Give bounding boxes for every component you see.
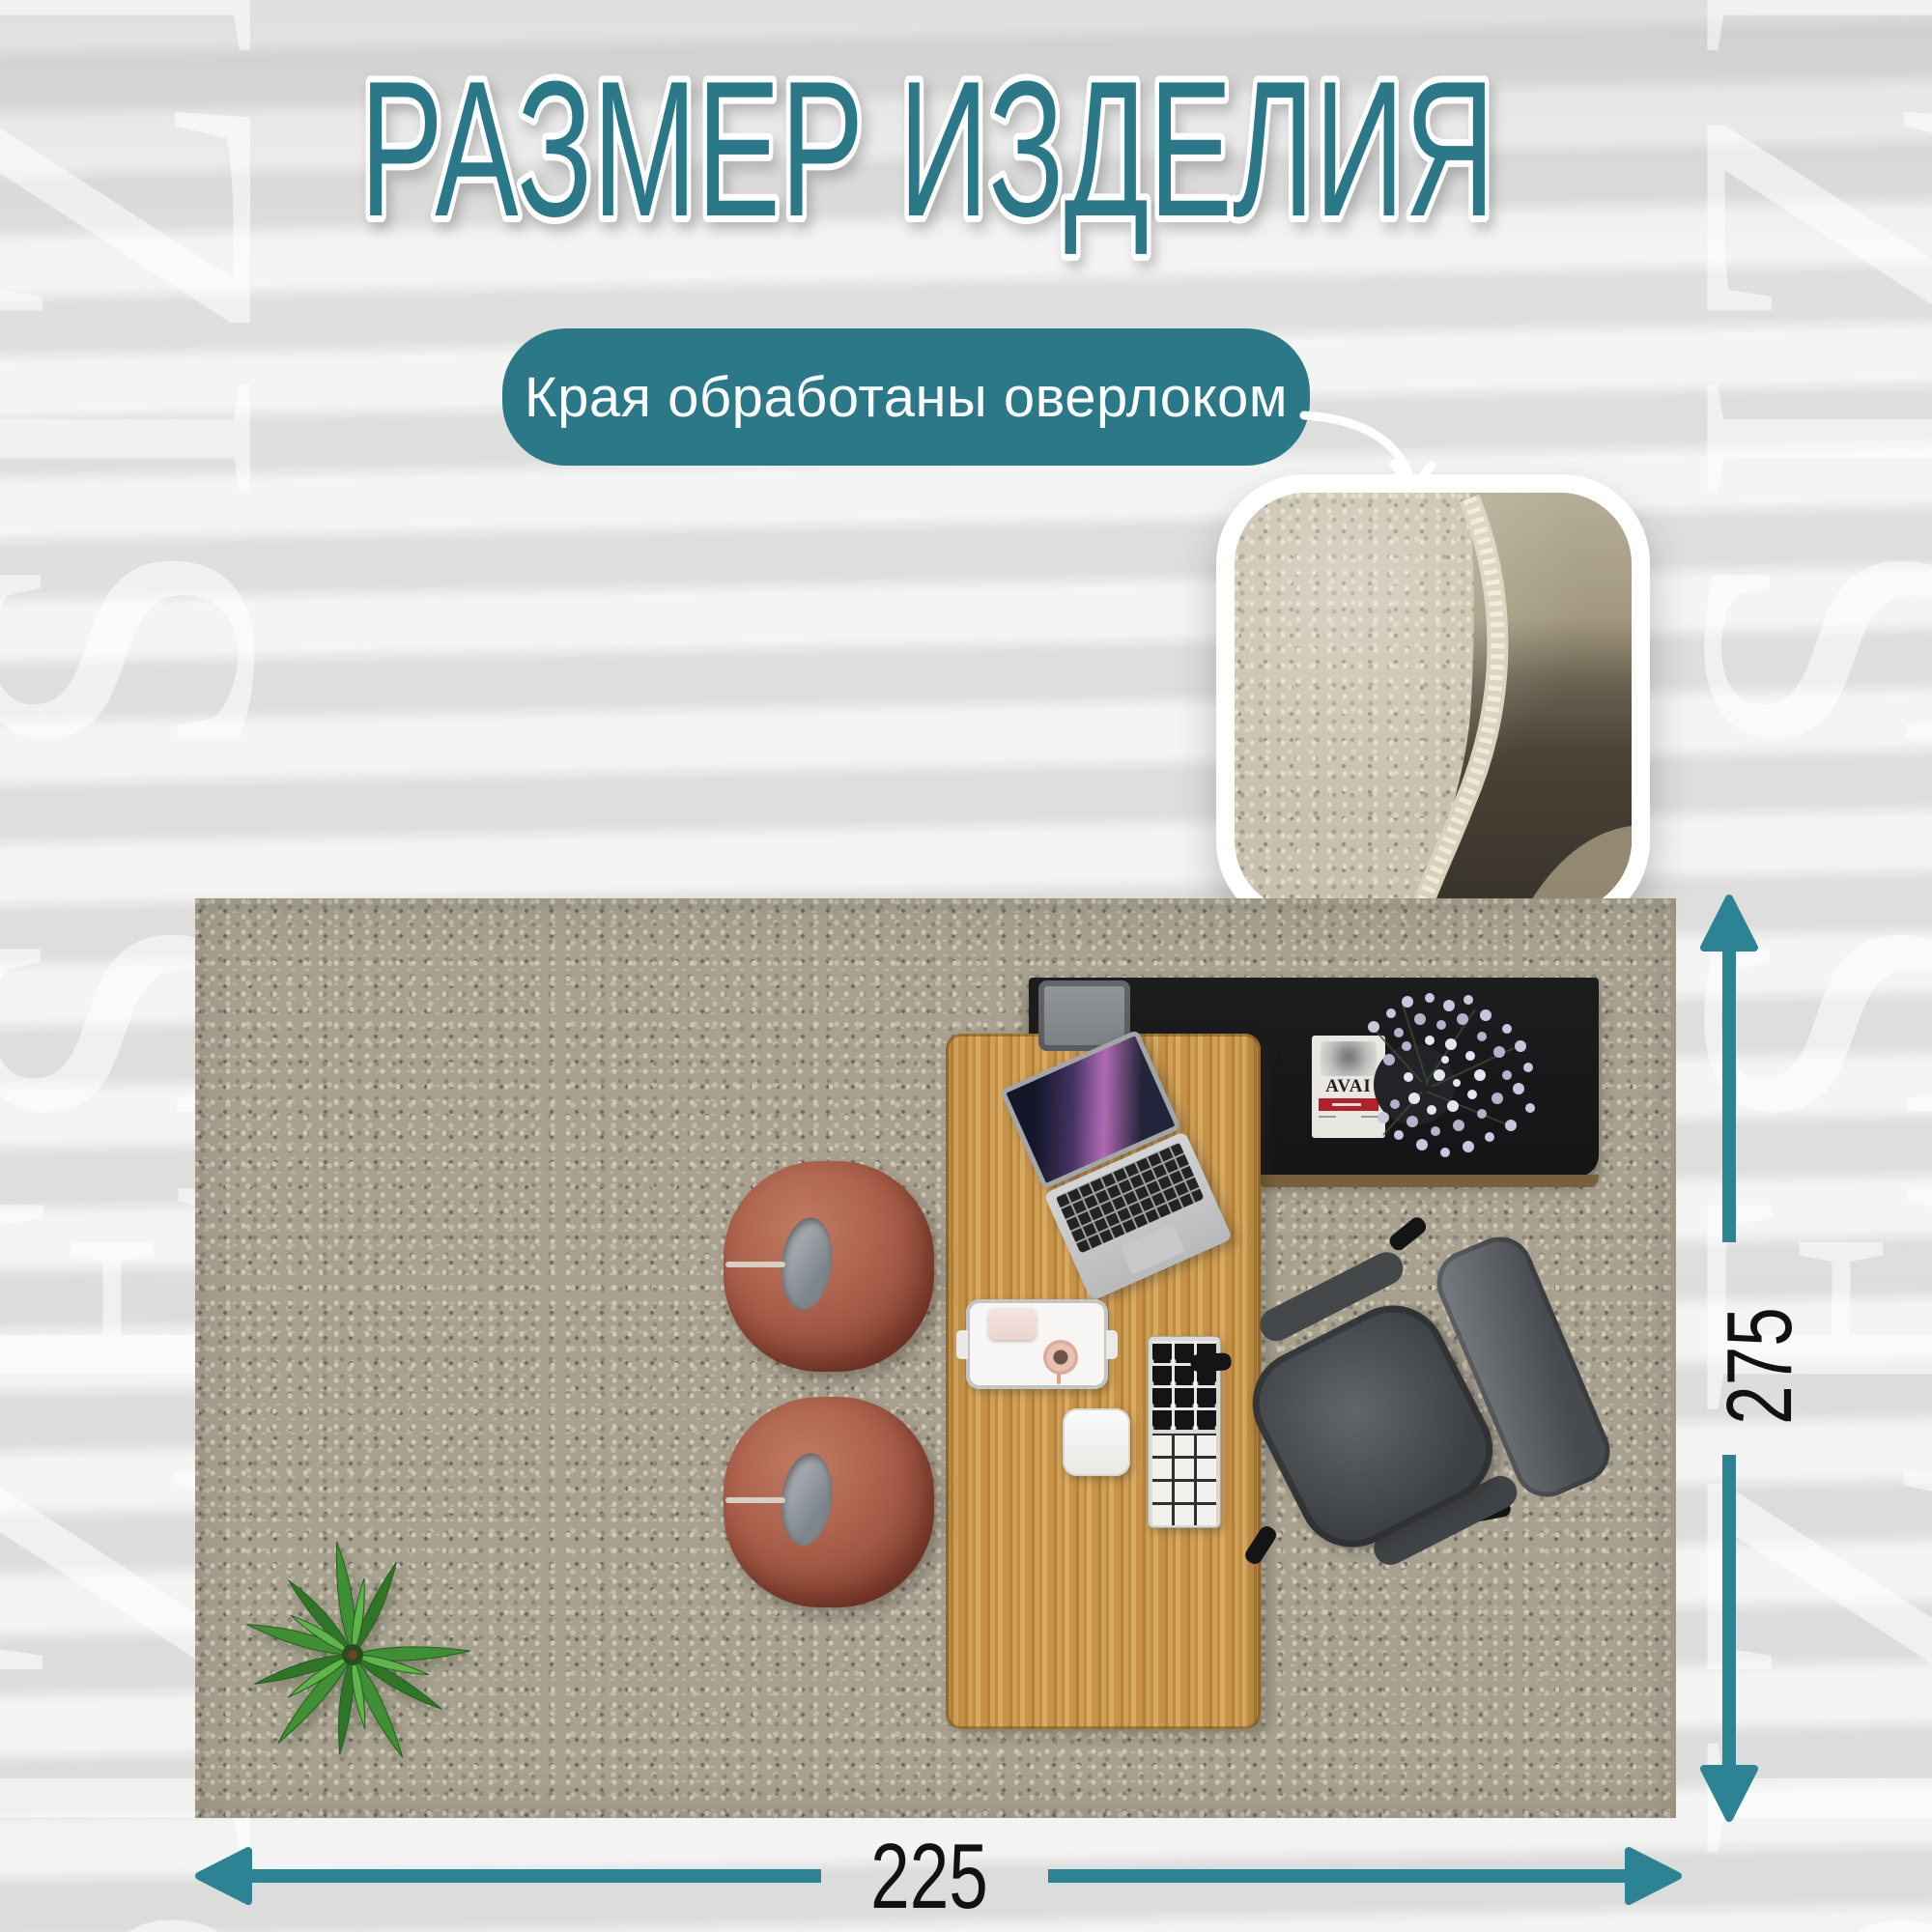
overlock-callout-badge: Края обработаны оверлоком bbox=[502, 328, 1310, 466]
height-value: 275 bbox=[1683, 1293, 1837, 1439]
overlock-callout-label: Края обработаны оверлоком bbox=[525, 365, 1288, 430]
carpet-edge-inset bbox=[1216, 474, 1650, 930]
page-title: РАЗМЕР ИЗДЕЛИЯ bbox=[0, 0, 1932, 270]
palm-plant bbox=[208, 1510, 497, 1800]
pod-chair-seam bbox=[725, 1497, 785, 1503]
product-size-infographic: SIZESSIZES SIZESSIZES РАЗМЕР ИЗДЕЛИЯ Кра… bbox=[0, 0, 1932, 1932]
storage-box bbox=[1063, 1408, 1130, 1476]
chair-caster bbox=[1190, 1352, 1232, 1372]
tray-cup bbox=[1043, 1340, 1078, 1375]
pod-chair-top bbox=[724, 1161, 934, 1372]
pod-chair-seam bbox=[725, 1262, 785, 1267]
carpet-photo: AVAI bbox=[195, 898, 1676, 1818]
pod-chair-bottom bbox=[724, 1397, 934, 1607]
chair-caster bbox=[1386, 1214, 1429, 1253]
width-value: 225 bbox=[856, 1819, 1003, 1932]
tray-handle-left bbox=[956, 1330, 968, 1359]
tray-soap bbox=[988, 1308, 1037, 1340]
flower-vase bbox=[1345, 990, 1549, 1166]
page-title-text: РАЗМЕР ИЗДЕЛИЯ bbox=[360, 42, 1495, 257]
inset-sheen bbox=[1235, 493, 1632, 912]
carpet-corner-overlock-photo-icon bbox=[1235, 493, 1632, 912]
tray-handle-right bbox=[1106, 1330, 1118, 1359]
sideboard-base bbox=[1261, 1175, 1599, 1187]
desk-tray bbox=[966, 1299, 1108, 1389]
